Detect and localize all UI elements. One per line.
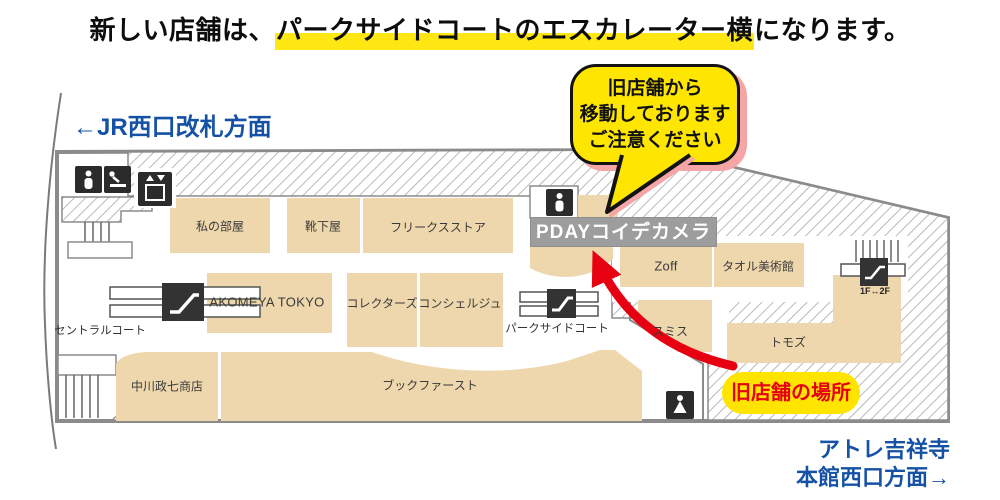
store-label-towel-museum: タオル美術館 [722,258,794,275]
store-label-concierge: コンシェルジュ [418,295,501,312]
store-label-freaks-store: フリークスストア [390,219,486,236]
store-label-smith: スミス [652,323,688,340]
store-label-zoff: Zoff [654,259,677,274]
atre-direction-line2: 本館西口方面→ [796,464,950,492]
parkside-court-label: パークサイドコート [505,320,609,336]
atre-direction-line1: アトレ吉祥寺 [796,436,950,464]
floor-link-label: 1F↔2F [860,286,890,296]
speech-bubble-line2: 移動しております [573,102,737,128]
store-label-akomeya: AKOMEYA TOKYO [209,295,324,310]
floor-plan-map [0,0,1000,500]
elevator-icon [134,168,176,208]
store-label-book1st: ブックファースト [382,377,477,394]
stair-landing [68,242,132,258]
title-suffix: になります。 [754,15,910,45]
store-label-nakagawa: 中川政七商店 [131,378,203,395]
store-label-watashi-no-heya: 私の部屋 [196,218,244,235]
baby-changing-icon [104,166,131,193]
old-store-location-badge: 旧店舗の場所 [722,372,860,414]
speech-bubble-tail [560,140,730,230]
title-prefix: 新しい店舗は、 [90,15,276,45]
stair-landing-lower [58,355,116,375]
atre-direction-label: アトレ吉祥寺 本館西口方面→ [796,436,950,492]
title-highlight: パークサイドコートのエスカレーター横 [275,15,754,50]
page-title: 新しい店舗は、パークサイドコートのエスカレーター横になります。 [0,10,1000,47]
female-toilet-icon [666,391,694,419]
jr-west-direction-label: ←JR西口改札方面 [73,107,272,142]
central-court-label: セントラルコート [54,322,146,338]
store-label-collectors: コレクターズ [347,295,418,312]
store-label-tomods: トモズ [770,334,806,351]
toilet-icon [75,166,102,193]
store-label-kutsushitaya: 靴下屋 [305,218,341,235]
corridor-divider [710,300,729,365]
speech-bubble-line1: 旧店舗から [573,76,737,102]
